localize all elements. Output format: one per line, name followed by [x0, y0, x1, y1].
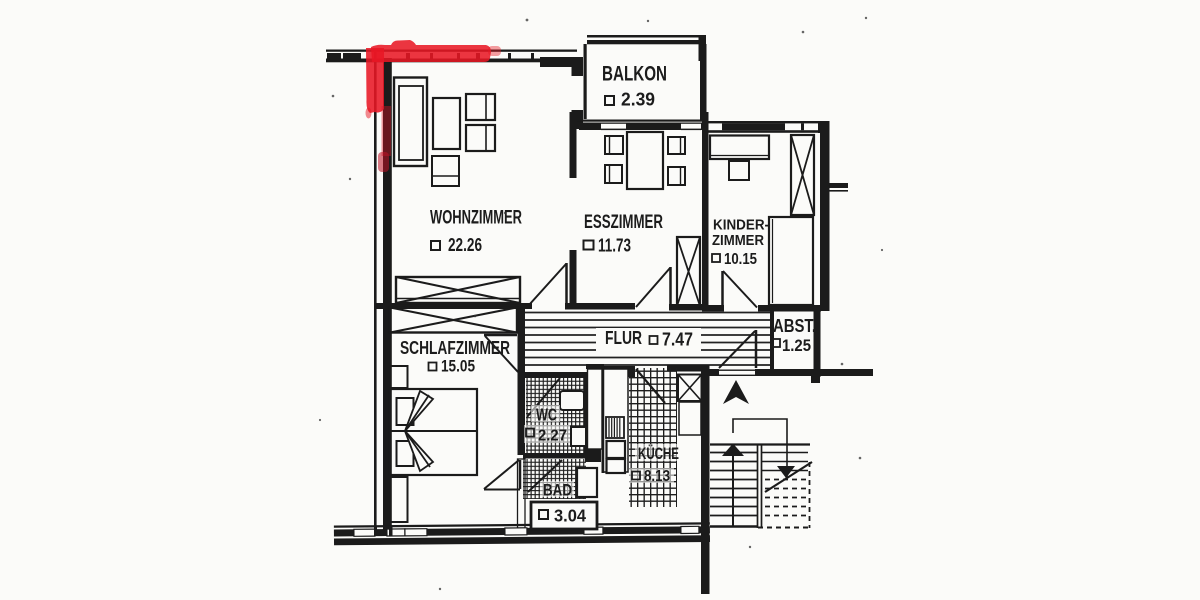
svg-text:1.25: 1.25	[782, 336, 811, 355]
svg-text:BALKON: BALKON	[602, 63, 667, 86]
svg-text:BAD: BAD	[543, 482, 572, 500]
svg-text:11.73: 11.73	[598, 236, 631, 256]
svg-text:KINDER-: KINDER-	[713, 218, 769, 234]
svg-text:7.47: 7.47	[662, 330, 693, 350]
svg-text:10.15: 10.15	[724, 251, 757, 268]
svg-text:15.05: 15.05	[441, 358, 475, 376]
svg-text:FLUR: FLUR	[605, 328, 642, 348]
svg-text:ABST.: ABST.	[773, 316, 816, 336]
svg-text:ZIMMER: ZIMMER	[712, 233, 764, 249]
svg-text:ESSZIMMER: ESSZIMMER	[584, 212, 663, 233]
svg-text:8.13: 8.13	[644, 468, 670, 485]
svg-text:22.26: 22.26	[448, 235, 482, 255]
svg-text:3.04: 3.04	[554, 506, 586, 526]
svg-text:KÜCHE: KÜCHE	[638, 444, 679, 463]
svg-text:2.39: 2.39	[621, 90, 655, 110]
svg-text:SCHLAFZIMMER: SCHLAFZIMMER	[400, 337, 510, 358]
svg-text:WOHNZIMMER: WOHNZIMMER	[430, 208, 522, 229]
svg-text:WC: WC	[536, 405, 557, 425]
svg-text:2.27: 2.27	[538, 428, 567, 445]
